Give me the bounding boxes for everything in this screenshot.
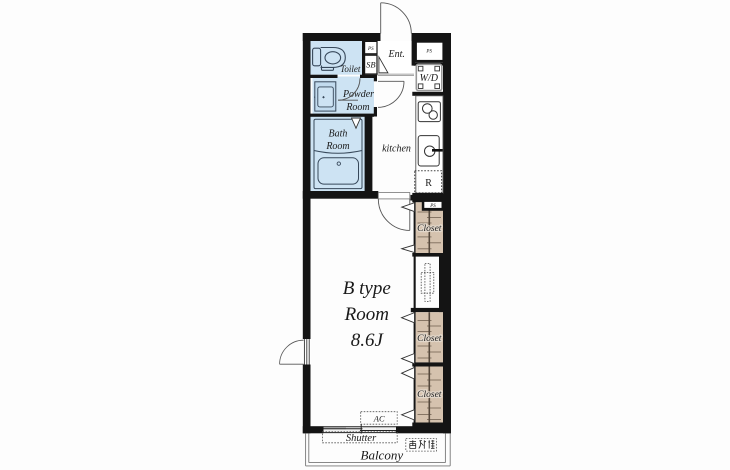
svg-text:Toilet: Toilet	[340, 64, 361, 74]
svg-text:Shutter: Shutter	[346, 433, 377, 444]
svg-text:PS: PS	[425, 50, 432, 55]
svg-text:Room: Room	[344, 304, 389, 325]
svg-text:kitchen: kitchen	[382, 144, 411, 155]
svg-text:Closet: Closet	[417, 334, 442, 344]
svg-text:Ent.: Ent.	[388, 49, 405, 60]
svg-text:PS: PS	[429, 204, 436, 209]
svg-text:AC: AC	[373, 413, 385, 423]
svg-text:Closet: Closet	[417, 224, 442, 234]
svg-text:W/D: W/D	[420, 73, 439, 84]
svg-text:Closet: Closet	[417, 390, 442, 400]
svg-text:R: R	[425, 178, 432, 189]
svg-text:B type: B type	[343, 278, 391, 299]
svg-text:PS: PS	[367, 47, 374, 52]
svg-text:8.6J: 8.6J	[351, 330, 385, 351]
svg-text:SB: SB	[366, 60, 375, 70]
svg-text:Room: Room	[325, 141, 349, 152]
svg-text:Room: Room	[345, 102, 369, 113]
svg-text:Bath: Bath	[329, 129, 348, 140]
svg-text:Balcony: Balcony	[361, 448, 404, 463]
